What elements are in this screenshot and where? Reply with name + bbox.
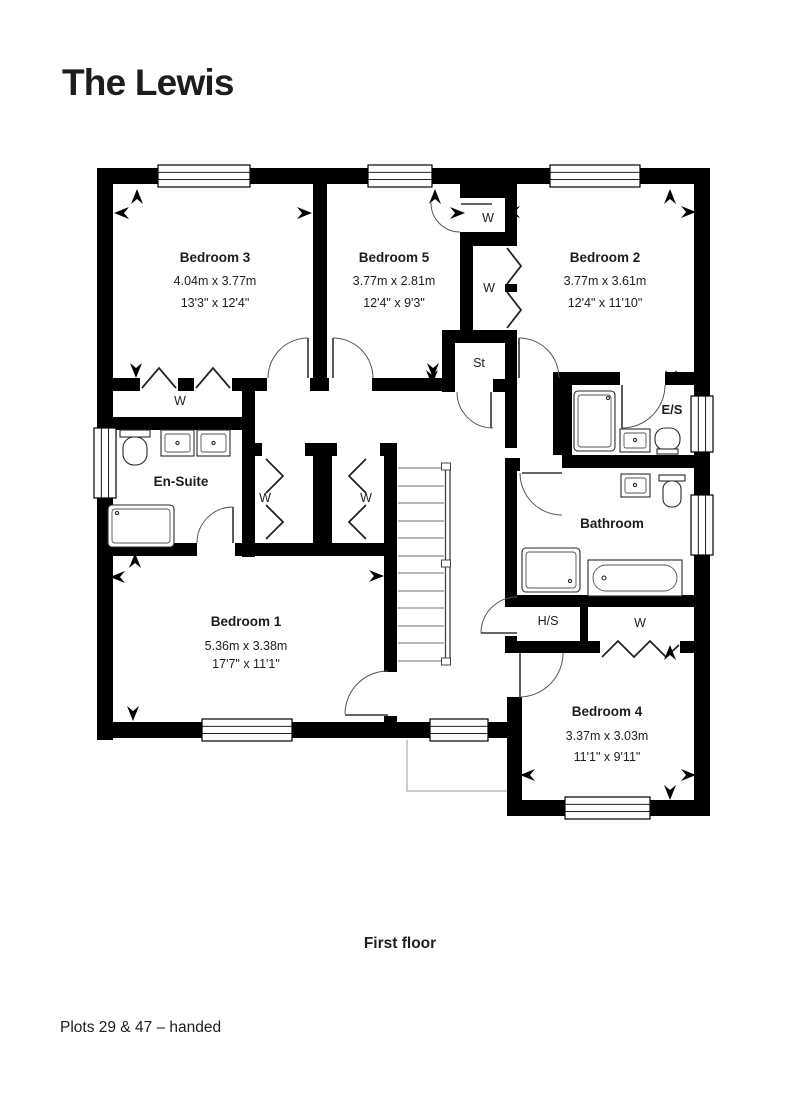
window (94, 428, 116, 498)
room-dim-metric-bedroom2: 3.77m x 3.61m (564, 274, 647, 288)
ground-floor-outline (407, 740, 507, 791)
room-label-bedroom2: Bedroom 2 (570, 250, 641, 265)
room-dim-metric-bedroom1: 5.36m x 3.38m (205, 639, 288, 653)
room-label-ensuite: En-Suite (154, 474, 209, 489)
room-label-es: E/S (662, 402, 683, 417)
room-dim-imperial-bedroom5: 12'4" x 9'3" (363, 296, 425, 310)
window (550, 165, 640, 187)
bathtub-icon (588, 560, 682, 596)
window (368, 165, 432, 187)
wardrobe-label: W (483, 281, 495, 295)
floor-plan-svg: The Lewis First floor Plots 29 & 47 – ha… (0, 0, 800, 1100)
room-labels: Bedroom 3 4.04m x 3.77m 13'3" x 12'4" Be… (154, 211, 683, 764)
window (202, 719, 292, 741)
sink-icon (621, 474, 650, 497)
room-label-bathroom: Bathroom (580, 516, 644, 531)
sink-icon (197, 430, 230, 456)
plots-label: Plots 29 & 47 – handed (60, 1019, 221, 1036)
window (430, 719, 488, 741)
wardrobe-label: W (634, 616, 646, 630)
wardrobe-label: W (259, 491, 271, 505)
page-title: The Lewis (62, 62, 234, 103)
sink-icon (161, 430, 194, 456)
room-label-hs: H/S (538, 614, 559, 628)
window (691, 396, 713, 452)
toilet-icon (655, 428, 680, 454)
room-dim-imperial-bedroom3: 13'3" x 12'4" (181, 296, 250, 310)
page: The Lewis First floor Plots 29 & 47 – ha… (0, 0, 800, 1100)
shower-icon (108, 505, 174, 547)
wardrobe-label: W (482, 211, 494, 225)
room-label-bedroom4: Bedroom 4 (572, 704, 643, 719)
room-dim-imperial-bedroom1: 17'7" x 11'1" (212, 657, 280, 671)
room-dim-imperial-bedroom4: 11'1" x 9'11" (574, 750, 641, 764)
window (565, 797, 650, 819)
window (158, 165, 250, 187)
room-dim-metric-bedroom3: 4.04m x 3.77m (174, 274, 257, 288)
toilet-icon (659, 475, 685, 507)
room-label-store: St (473, 356, 485, 370)
room-label-bedroom1: Bedroom 1 (211, 614, 282, 629)
staircase (398, 463, 451, 665)
wardrobe-label: W (360, 491, 372, 505)
wardrobe-label: W (174, 394, 186, 408)
sink-icon (620, 429, 650, 452)
floor-label: First floor (364, 935, 436, 952)
toilet-icon (120, 430, 150, 465)
shower-icon (574, 391, 615, 451)
room-dim-metric-bedroom4: 3.37m x 3.03m (566, 729, 649, 743)
room-dim-imperial-bedroom2: 12'4" x 11'10" (568, 296, 643, 310)
room-dim-metric-bedroom5: 3.77m x 2.81m (353, 274, 436, 288)
shower-icon (522, 548, 580, 592)
window (691, 495, 713, 555)
room-label-bedroom3: Bedroom 3 (180, 250, 251, 265)
room-label-bedroom5: Bedroom 5 (359, 250, 430, 265)
